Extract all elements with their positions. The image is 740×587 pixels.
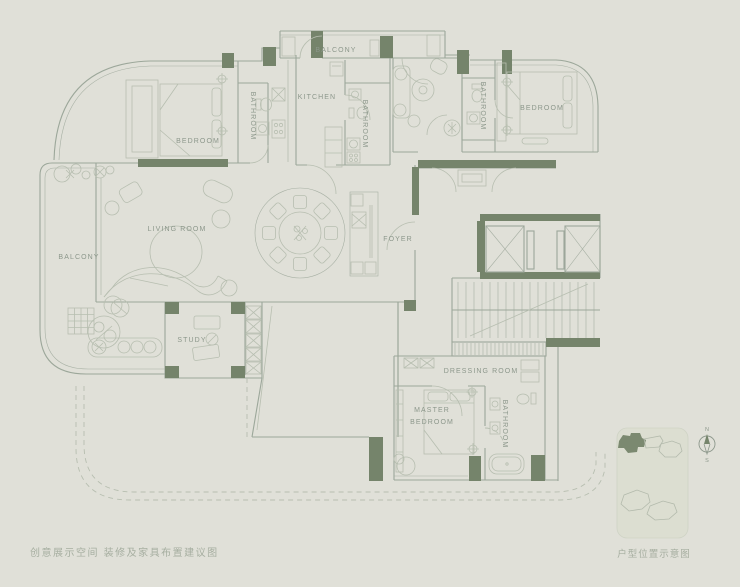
floor-plan-drawing: BALCONY KITCHEN BATHROOM BEDROOM BATHROO… (0, 0, 740, 587)
label-dressing-room: DRESSING ROOM (444, 368, 519, 375)
furniture-master-bathroom (489, 393, 536, 474)
furniture-island (350, 192, 378, 276)
furniture-foyer (458, 170, 486, 186)
label-master-bedroom-line1: MASTER (414, 407, 450, 414)
furniture-bathroom-1 (256, 98, 272, 135)
label-study: STUDY (177, 337, 206, 344)
compass-south-label: S (705, 458, 709, 464)
label-living-room: LIVING ROOM (148, 226, 207, 233)
label-bedroom-right: BEDROOM (520, 105, 564, 112)
furniture-family-room (393, 57, 460, 136)
furniture-living-room (104, 177, 237, 314)
wall-pillars (138, 31, 600, 481)
label-master-bedroom-line2: BEDROOM (410, 419, 454, 426)
elevator-shafts (486, 226, 600, 272)
compass-north-label: N (705, 427, 709, 433)
furniture-trapezoid-room (257, 306, 272, 430)
furniture-balcony-top (282, 35, 440, 56)
label-bathroom-2: BATHROOM (361, 100, 368, 149)
label-kitchen: KITCHEN (298, 94, 336, 101)
furniture-bedroom-left (126, 73, 228, 158)
label-bathroom-master: BATHROOM (501, 400, 508, 449)
room-labels: BALCONY KITCHEN BATHROOM BEDROOM BATHROO… (58, 47, 564, 448)
label-balcony-top: BALCONY (315, 47, 356, 54)
dashed-floor-edge (76, 378, 605, 500)
bottom-left-caption: 创意展示空间 装修及家具布置建议图 (30, 546, 219, 559)
floor-plan-page: BALCONY KITCHEN BATHROOM BEDROOM BATHROO… (0, 0, 740, 587)
furniture-dining (255, 188, 345, 278)
inset-caption: 户型位置示意图 (617, 548, 691, 560)
furniture-master-bedroom (394, 386, 479, 475)
label-bathroom-3: BATHROOM (479, 82, 486, 131)
compass-icon: N S (699, 427, 715, 464)
furniture-bedroom-right (497, 63, 577, 144)
label-balcony-left: BALCONY (58, 254, 99, 261)
label-foyer: FOYER (383, 236, 413, 243)
label-bathroom-1: BATHROOM (249, 92, 256, 141)
furniture-kitchen (272, 60, 343, 167)
label-bedroom-left: BEDROOM (176, 138, 220, 145)
location-inset (617, 428, 688, 538)
closet-hatch (455, 343, 543, 355)
